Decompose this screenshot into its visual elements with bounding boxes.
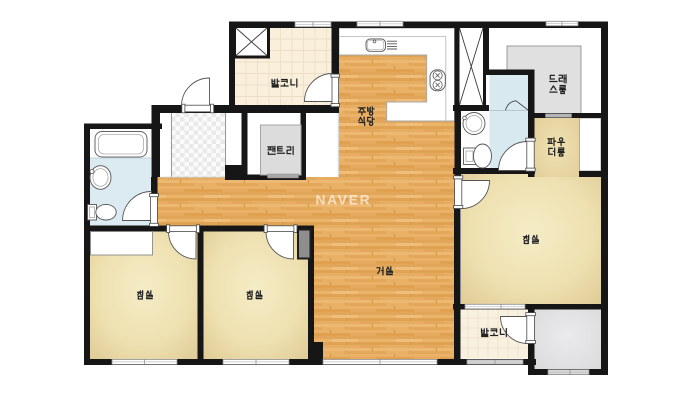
svg-text:NAVER: NAVER [316,193,372,208]
